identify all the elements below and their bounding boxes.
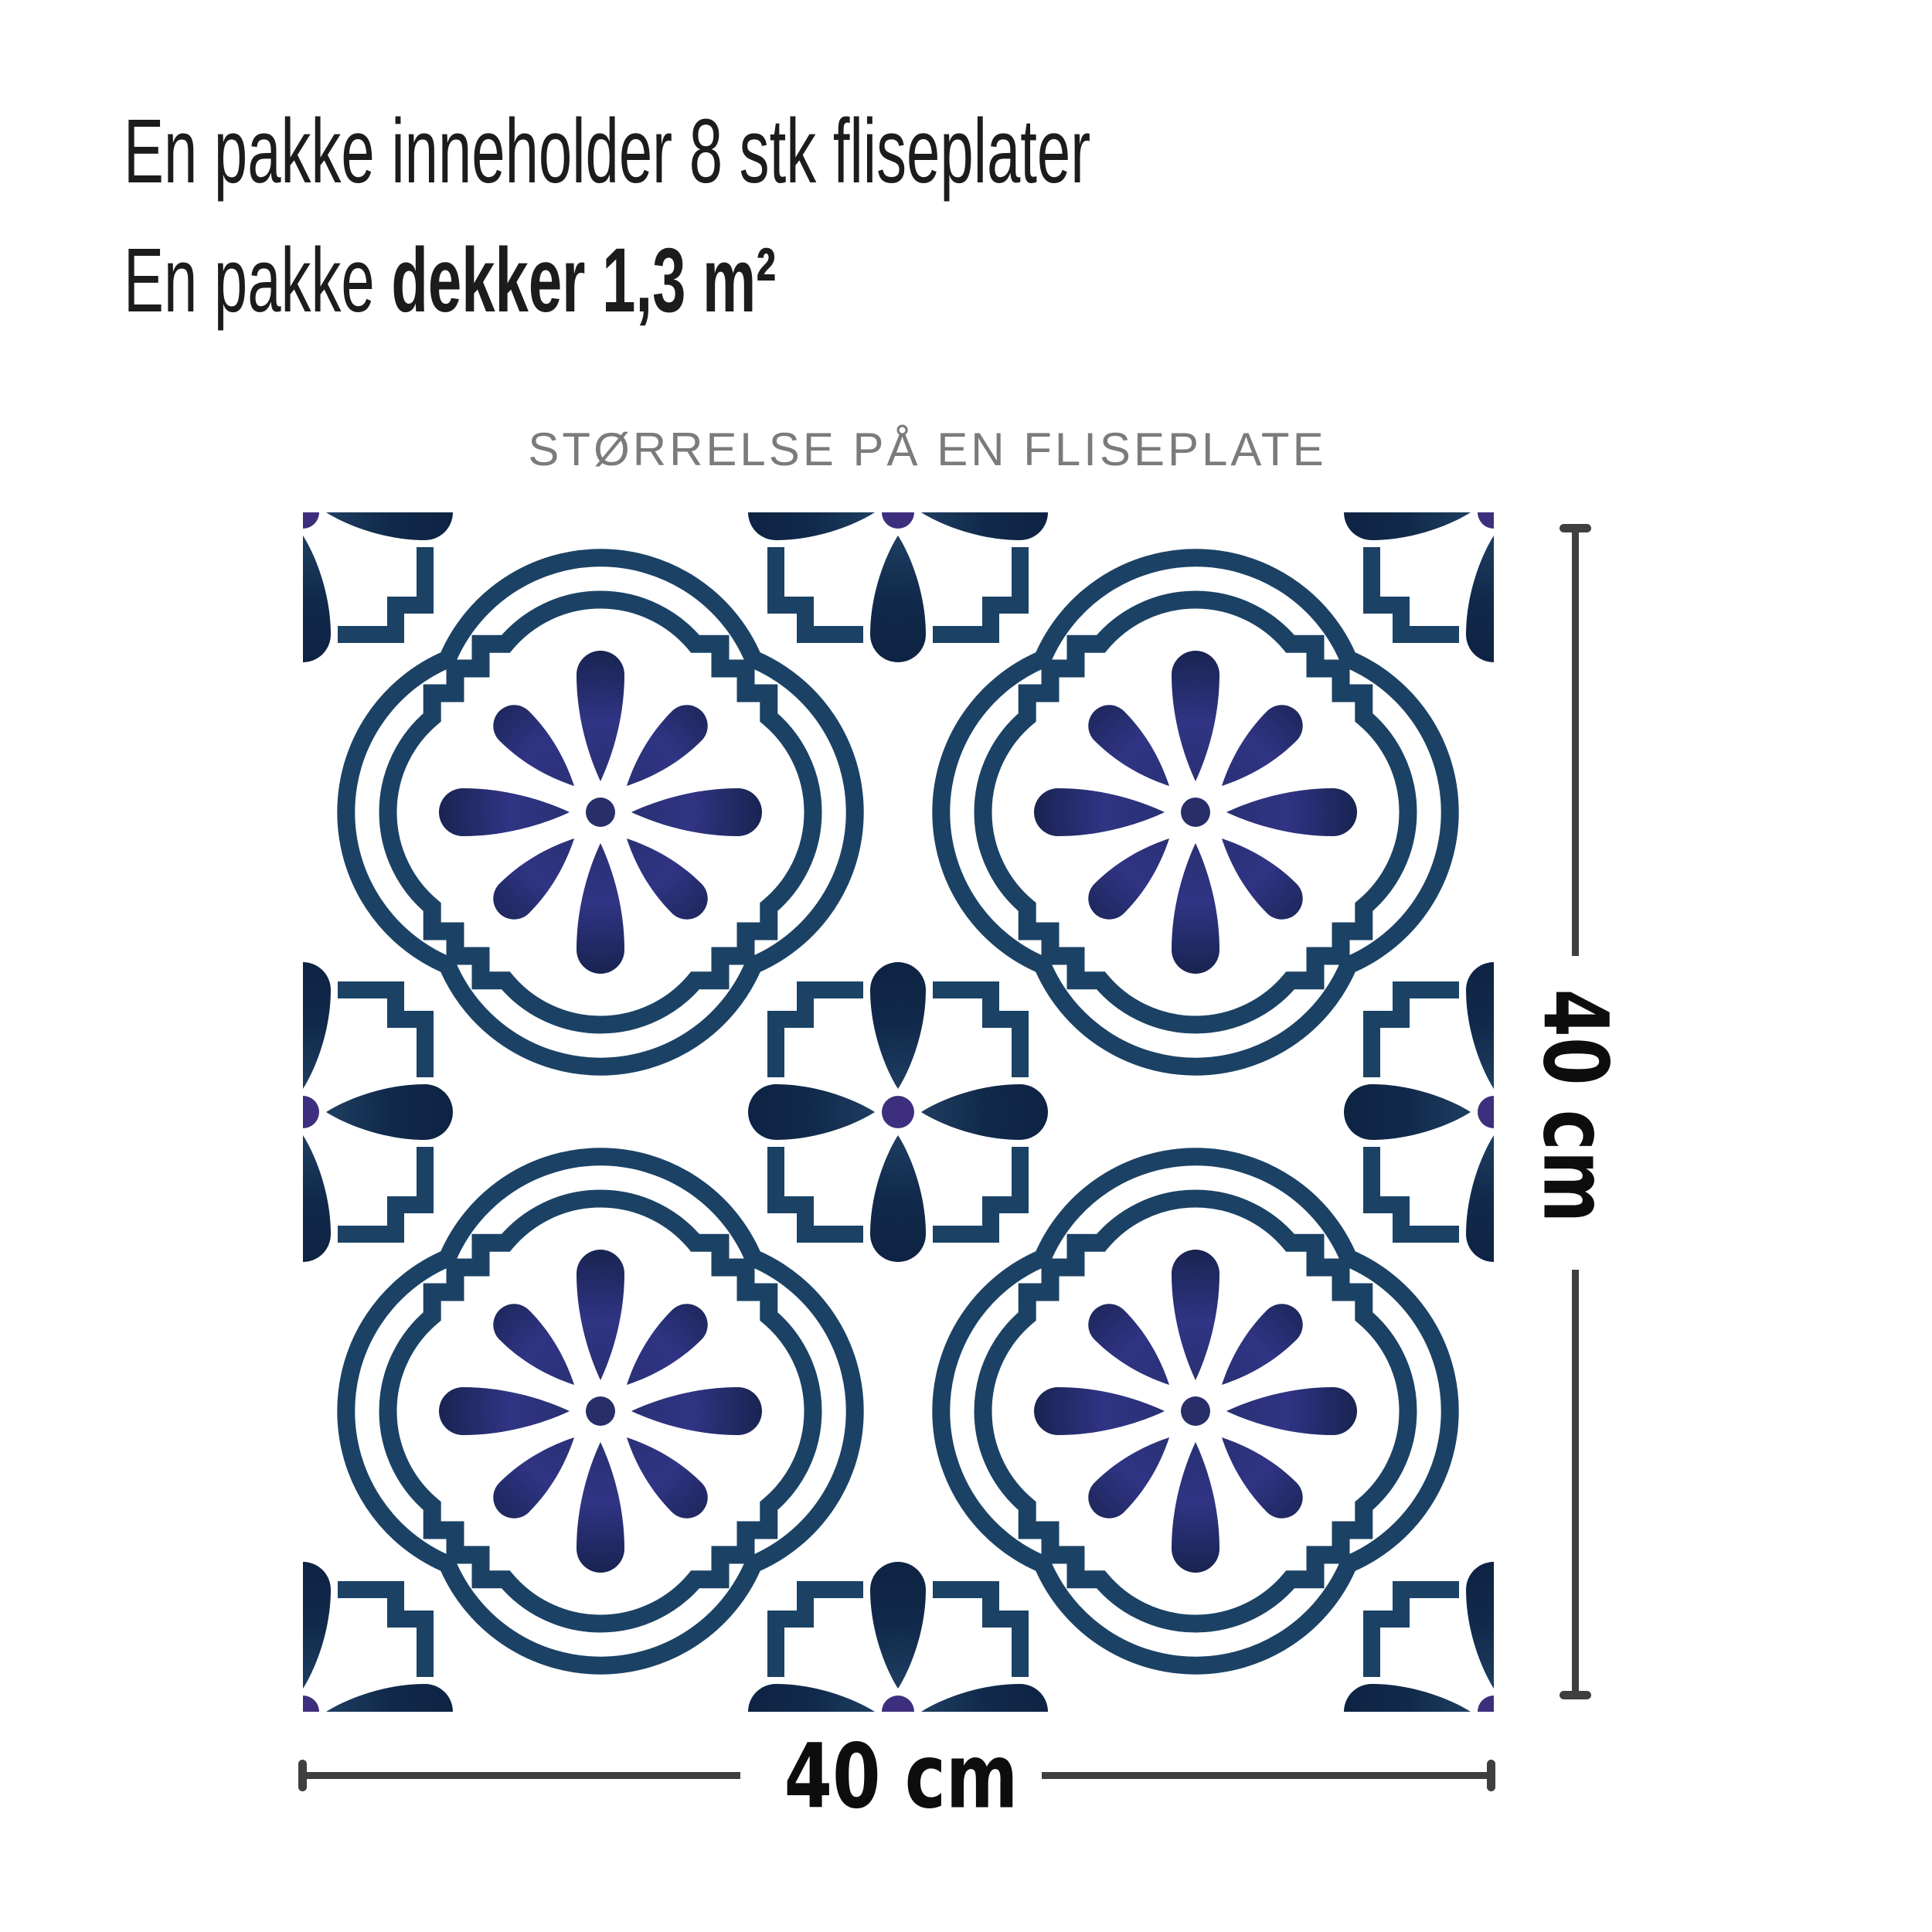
height-dimension-bottom-cap — [1560, 1691, 1591, 1699]
width-dimension-line-left — [303, 1772, 740, 1779]
tile-size-caption: STØRRELSE PÅ EN FLISEPLATE — [528, 427, 1326, 473]
headline-line2-bold: dekker 1,3 m² — [391, 230, 776, 332]
height-dimension-label: 40 cm — [1530, 989, 1619, 1223]
height-dimension-line-upper — [1572, 532, 1579, 956]
width-dimension-line-right — [1042, 1772, 1492, 1779]
headline-line2: En pakke dekker 1,3 m² — [124, 235, 776, 326]
width-dimension-right-cap — [1487, 1760, 1495, 1791]
tile-pattern-image — [303, 512, 1494, 1712]
height-dimension-line-lower — [1572, 1270, 1579, 1691]
headline-line1: En pakke inneholder 8 stk fliseplater — [124, 106, 1090, 197]
headline-line2-regular: En pakke — [124, 230, 391, 332]
width-dimension-label: 40 cm — [784, 1733, 1019, 1822]
